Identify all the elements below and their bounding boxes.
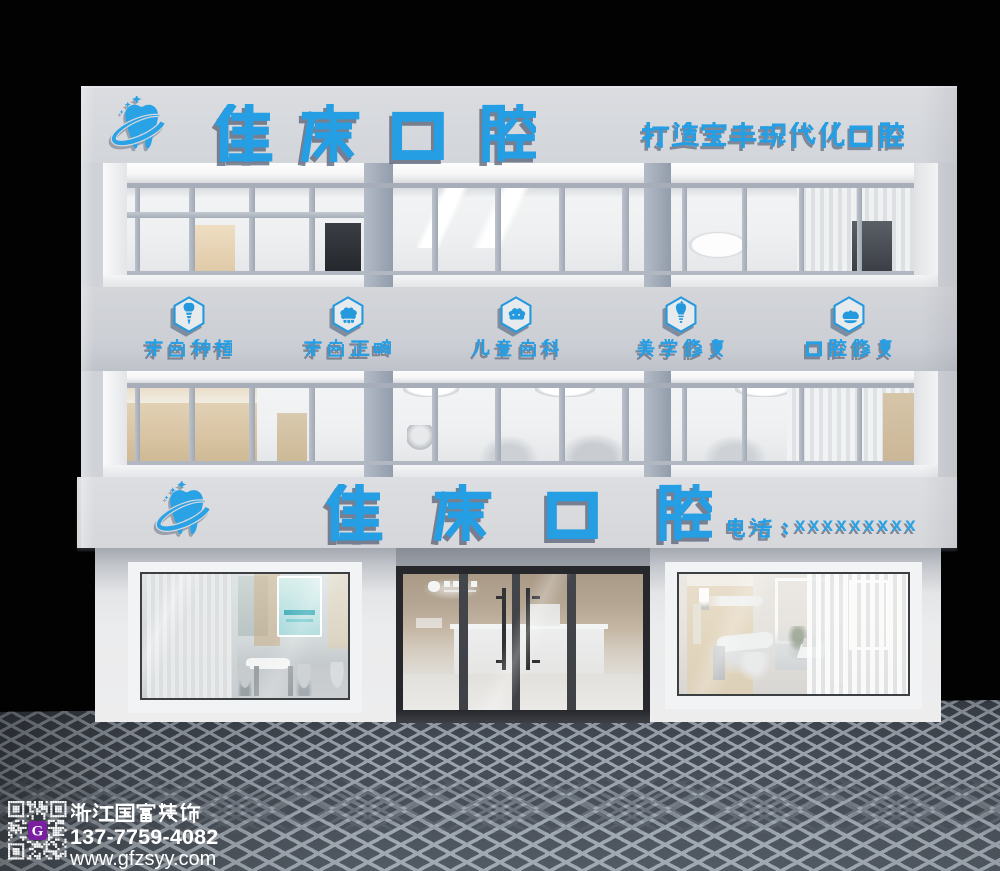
svg-text:G: G [32, 824, 44, 840]
